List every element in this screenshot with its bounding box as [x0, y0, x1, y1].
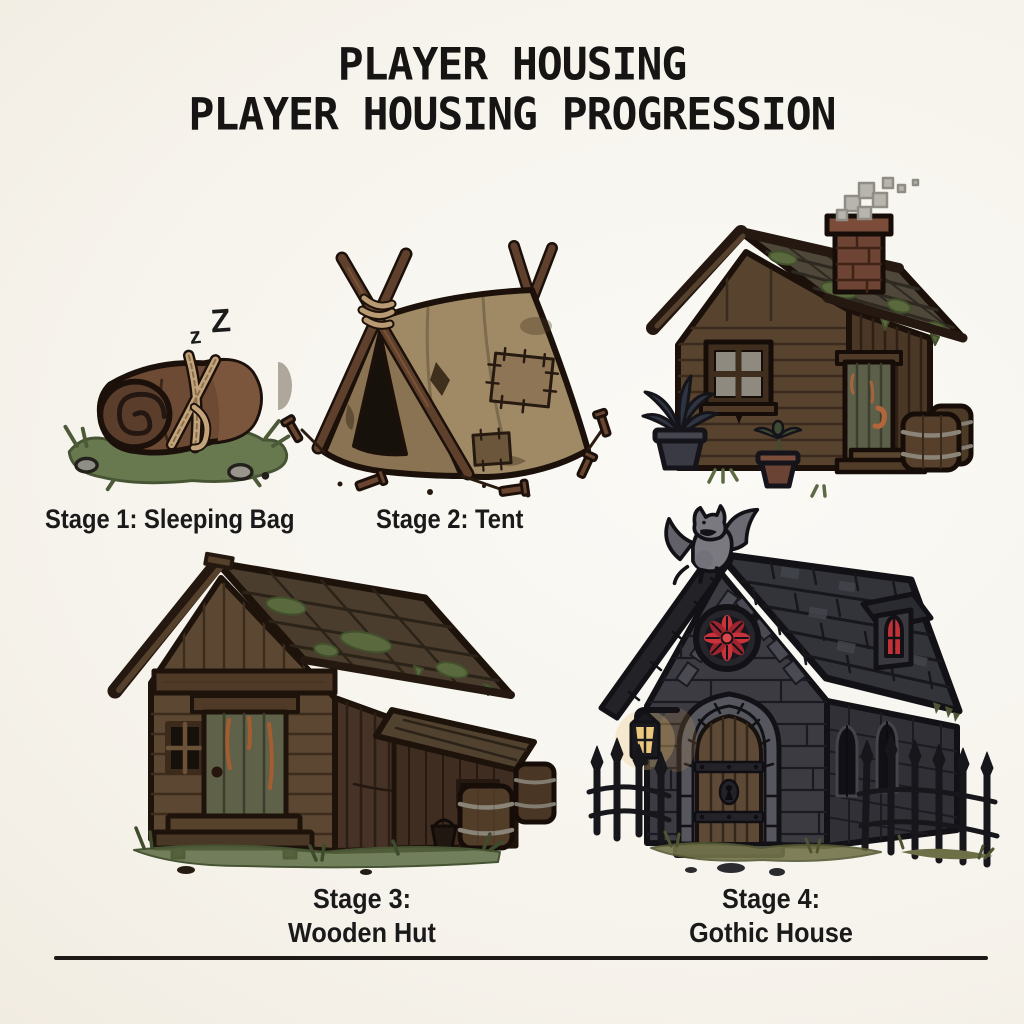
zz-big: Z: [209, 301, 232, 339]
door-keyhole: [720, 780, 738, 804]
stage2-label: Stage 2: Tent: [376, 504, 523, 535]
rose-window: [696, 607, 758, 669]
stage3-wooden-hut-illustration: [64, 548, 564, 885]
title-line-2: PLAYER HOUSING PROGRESSION: [0, 89, 1024, 141]
stage4-label-line2: Gothic House: [636, 916, 906, 950]
hut-window: [168, 724, 202, 772]
bottom-divider-line: [54, 956, 988, 960]
wall-lantern: [615, 708, 697, 772]
wooden-cabin-illustration: [631, 170, 1021, 513]
cabin-door: [837, 352, 901, 460]
stage4-label-line1: Stage 4:: [636, 882, 906, 916]
potted-plant-small: [755, 421, 801, 486]
stage4-gothic-house-illustration: [581, 496, 1021, 883]
stage3-label: Stage 3: Wooden Hut: [227, 882, 497, 950]
stage3-label-line1: Stage 3:: [227, 882, 497, 916]
page-title: PLAYER HOUSING PLAYER HOUSING PROGRESSIO…: [0, 40, 1024, 140]
stage3-label-line2: Wooden Hut: [227, 916, 497, 950]
cabin-chimney: [827, 216, 891, 292]
door-handle: [212, 767, 223, 778]
stage2-tent-illustration: [278, 234, 613, 507]
sleep-zz-annotation: z Z: [188, 301, 232, 349]
zz-small: z: [188, 322, 202, 349]
cabin-barrels: [903, 406, 971, 470]
stage1-label: Stage 1: Sleeping Bag: [45, 504, 295, 535]
hut-door: [192, 696, 298, 818]
stage1-sleeping-bag-illustration: z Z: [50, 298, 300, 498]
stage4-label: Stage 4: Gothic House: [636, 882, 906, 950]
hut-cross-beam: [154, 671, 335, 693]
title-line-1: PLAYER HOUSING: [0, 39, 1024, 91]
